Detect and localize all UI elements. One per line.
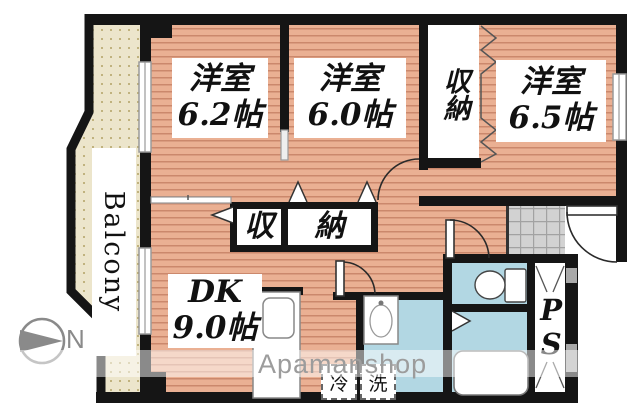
room2-size: 6.0帖 (308, 98, 393, 134)
floor-plan: 洋室 6.2帖 洋室 6.0帖 洋室 6.5帖 DK 9.0帖 収納 収 納 B… (0, 0, 640, 416)
room2-name: 洋室 (319, 62, 381, 98)
room3-size: 6.5帖 (509, 101, 594, 137)
center-closet-right-label: 納 (288, 206, 371, 248)
dk-name: DK (188, 275, 242, 311)
watermark-text: Apamanshop (258, 349, 427, 380)
center-closet-left-label: 収 (237, 206, 281, 248)
room3-label: 洋室 6.5帖 (496, 60, 606, 142)
room1-size: 6.2帖 (178, 98, 263, 134)
upper-closet-label: 収納 (437, 44, 471, 144)
balcony-label: Balcony (92, 148, 136, 356)
entrance-tile-floor (506, 206, 565, 260)
window-dk (139, 248, 151, 334)
entrance-step-line (506, 206, 509, 260)
room3-name: 洋室 (520, 65, 582, 101)
dk-label: DK 9.0帖 (168, 274, 262, 348)
entrance-door (567, 206, 617, 262)
sliding-partition-room1-room2 (281, 130, 288, 160)
window-room1 (139, 62, 151, 152)
room1-label: 洋室 6.2帖 (172, 58, 268, 138)
vanity-sink-icon (364, 296, 398, 344)
room2-label: 洋室 6.0帖 (294, 58, 406, 138)
room1-name: 洋室 (189, 62, 251, 98)
dk-size: 9.0帖 (173, 311, 258, 347)
window-room3 (613, 74, 626, 140)
